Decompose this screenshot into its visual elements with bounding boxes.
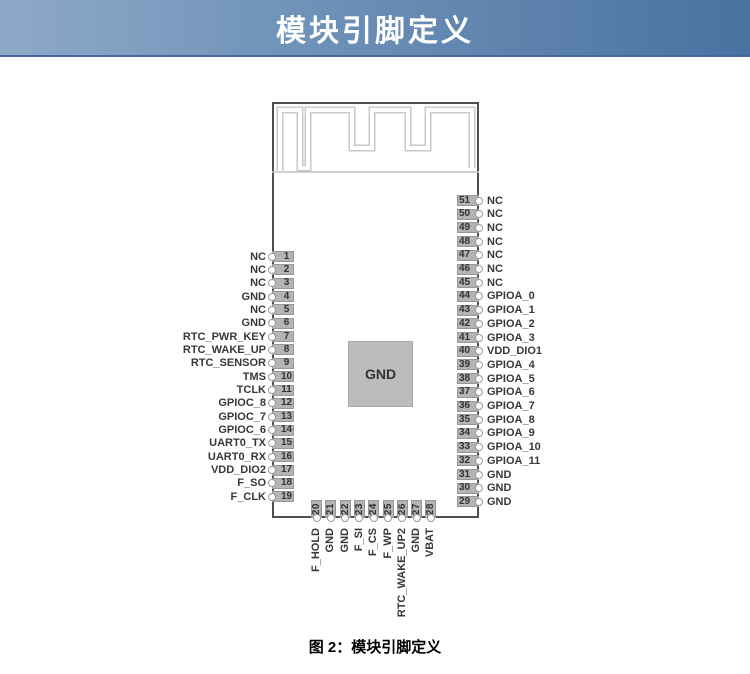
pin-label: GND <box>242 290 266 304</box>
pin-label: GPIOA_8 <box>487 413 535 427</box>
pin-label: NC <box>250 276 266 290</box>
castellation-notch <box>427 514 435 522</box>
pin-label: GPIOA_2 <box>487 317 535 331</box>
castellation-notch <box>475 361 483 369</box>
castellation-notch <box>475 388 483 396</box>
castellation-notch <box>268 306 276 314</box>
pin-label: F_HOLD <box>310 528 323 572</box>
pin-label: UART0_TX <box>209 436 266 450</box>
pin-label: NC <box>487 207 503 221</box>
pin-label: GPIOA_6 <box>487 385 535 399</box>
pin-label: TCLK <box>237 383 266 397</box>
pin-number: 3 <box>277 278 290 288</box>
pin-label: GND <box>487 495 511 509</box>
castellation-notch <box>475 210 483 218</box>
castellation-notch <box>370 514 378 522</box>
pin-label: NC <box>487 221 503 235</box>
castellation-notch <box>268 386 276 394</box>
pin-number: 13 <box>274 412 292 422</box>
pin-label: NC <box>250 250 266 264</box>
pin-number: 15 <box>274 438 292 448</box>
pin-label: VDD_DIO1 <box>487 344 542 358</box>
castellation-notch <box>313 514 321 522</box>
pin-label: GND <box>339 528 352 552</box>
pin-label: TMS <box>243 370 266 384</box>
pin-label: GPIOA_5 <box>487 372 535 386</box>
castellation-notch <box>475 347 483 355</box>
castellation-notch <box>475 457 483 465</box>
pin-label: GND <box>487 468 511 482</box>
castellation-notch <box>341 514 349 522</box>
pin-label: F_CLK <box>231 490 266 504</box>
pin-number: 16 <box>274 452 292 462</box>
pin-label: GPIOC_8 <box>218 396 266 410</box>
pin-label: GPIOA_1 <box>487 303 535 317</box>
castellation-notch <box>413 514 421 522</box>
pin-label: NC <box>487 262 503 276</box>
pin-number: 17 <box>274 465 292 475</box>
pin-label: GPIOA_9 <box>487 426 535 440</box>
castellation-notch <box>355 514 363 522</box>
castellation-notch <box>475 279 483 287</box>
ground-pad-label: GND <box>365 366 396 382</box>
castellation-notch <box>475 265 483 273</box>
pin-label: GPIOC_6 <box>218 423 266 437</box>
pin-label: RTC_PWR_KEY <box>183 330 266 344</box>
pin-number: 9 <box>277 358 290 368</box>
pin-label: NC <box>487 235 503 249</box>
castellation-notch <box>268 293 276 301</box>
pin-label: GND <box>324 528 337 552</box>
figure-caption: 图 2：模块引脚定义 <box>0 636 750 657</box>
pin-number: 4 <box>277 292 290 302</box>
pin-number: 18 <box>274 478 292 488</box>
castellation-notch <box>475 375 483 383</box>
castellation-notch <box>475 416 483 424</box>
pin-number: 5 <box>277 305 290 315</box>
pin-label: RTC_WAKE_UP <box>183 343 266 357</box>
pin-label: NC <box>250 263 266 277</box>
pin-label: VBAT <box>424 528 437 557</box>
castellation-notch <box>268 253 276 261</box>
pin-label: GPIOA_11 <box>487 454 540 468</box>
castellation-notch <box>475 334 483 342</box>
castellation-notch <box>475 402 483 410</box>
pin-label: GPIOA_0 <box>487 289 535 303</box>
pin-number: 11 <box>274 385 292 395</box>
pin-label: NC <box>250 303 266 317</box>
pin-label: NC <box>487 276 503 290</box>
pin-number: 12 <box>274 398 292 408</box>
pin-number: 7 <box>277 332 290 342</box>
pin-label: GPIOA_10 <box>487 440 541 454</box>
pin-number: 19 <box>274 492 292 502</box>
castellation-notch <box>475 197 483 205</box>
pin-label: GPIOA_3 <box>487 331 535 345</box>
page-title: 模块引脚定义 <box>276 6 474 50</box>
pin-label: GPIOA_4 <box>487 358 535 372</box>
pin-number: 1 <box>277 252 290 262</box>
pin-number: 6 <box>277 318 290 328</box>
castellation-notch <box>268 346 276 354</box>
antenna-trace <box>272 102 479 174</box>
pin-number: 10 <box>274 372 292 382</box>
castellation-notch <box>398 514 406 522</box>
pin-label: F_WP <box>382 528 395 559</box>
pin-label: F_SI <box>353 528 366 551</box>
castellation-notch <box>475 471 483 479</box>
pin-label: UART0_RX <box>208 450 266 464</box>
pin-label: NC <box>487 194 503 208</box>
castellation-notch <box>268 373 276 381</box>
castellation-notch <box>475 292 483 300</box>
castellation-notch <box>268 453 276 461</box>
castellation-notch <box>384 514 392 522</box>
castellation-notch <box>475 429 483 437</box>
castellation-notch <box>475 320 483 328</box>
castellation-notch <box>475 251 483 259</box>
pin-label: NC <box>487 248 503 262</box>
pin-number: 8 <box>277 345 290 355</box>
pin-label: VDD_DIO2 <box>211 463 266 477</box>
page: 模块引脚定义 GND 1NC2NC3NC4GND5NC6GND7RTC_PWR_… <box>0 0 750 674</box>
ground-pad: GND <box>348 341 413 407</box>
castellation-notch <box>268 426 276 434</box>
castellation-notch <box>475 224 483 232</box>
pin-label: GPIOA_7 <box>487 399 535 413</box>
pin-label: RTC_WAKE_UP2 <box>396 528 409 617</box>
castellation-notch <box>475 238 483 246</box>
castellation-notch <box>475 484 483 492</box>
pin-label: GPIOC_7 <box>218 410 266 424</box>
page-header: 模块引脚定义 <box>0 0 750 57</box>
pin-label: GND <box>487 481 511 495</box>
castellation-notch <box>268 266 276 274</box>
pin-label: F_SO <box>237 476 266 490</box>
castellation-notch <box>327 514 335 522</box>
pin-label: GND <box>242 316 266 330</box>
pin-label: RTC_SENSOR <box>191 356 266 370</box>
castellation-notch <box>475 306 483 314</box>
pin-number: 14 <box>274 425 292 435</box>
pin-label: F_CS <box>367 528 380 556</box>
pin-label: GND <box>410 528 423 552</box>
pin-number: 2 <box>277 265 290 275</box>
castellation-notch <box>475 498 483 506</box>
castellation-notch <box>475 443 483 451</box>
castellation-notch <box>268 493 276 501</box>
castellation-notch <box>268 333 276 341</box>
castellation-notch <box>268 413 276 421</box>
